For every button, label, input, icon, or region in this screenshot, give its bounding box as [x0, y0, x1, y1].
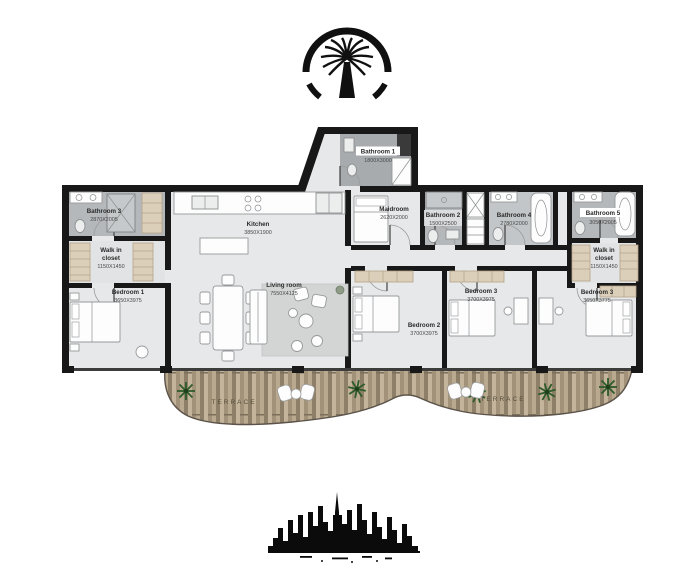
- walkin-left-label-2: closet: [102, 255, 120, 262]
- maidroom-label: Maidroom: [379, 206, 409, 213]
- kitchen-dims: 3850X1900: [244, 230, 272, 236]
- bedroom3b-dims: 3650X3775: [583, 298, 611, 304]
- bathroom5-label: Bathroom 5: [586, 210, 621, 217]
- floorplan-drawing: TERRACE TERRACE: [0, 0, 687, 572]
- bedroom1-label: Bedroom 1: [112, 289, 145, 296]
- walkin-right-dims: 1150X1450: [590, 264, 617, 270]
- walkin-left-label-1: Walk in: [100, 247, 122, 254]
- kitchen-label: Kitchen: [247, 221, 270, 228]
- bathroom4-dims: 2780X2000: [500, 221, 528, 227]
- terrace-label-left: TERRACE: [211, 399, 256, 406]
- bedroom3-dims: 3700X3975: [467, 297, 495, 303]
- living-label: Living room: [266, 282, 302, 289]
- terrace-label-right: TERRACE: [480, 396, 525, 403]
- palm-trunk-icon: [339, 62, 355, 98]
- palm-jumeirah-logo: [306, 31, 388, 98]
- living-dims: 7550X4125: [270, 291, 298, 297]
- living-room-furniture: [250, 284, 348, 356]
- bedroom2-dims: 3700X3975: [410, 331, 438, 337]
- walkin-right-label-1: Walk in: [593, 247, 615, 254]
- floorplan-page: TERRACE TERRACE: [0, 0, 687, 572]
- bathroom4-label: Bathroom 4: [497, 212, 532, 219]
- terrace: TERRACE TERRACE: [165, 370, 632, 424]
- bathroom2-label: Bathroom 2: [426, 212, 461, 219]
- plant-icon: [177, 382, 195, 400]
- maidroom-dims: 2620X2000: [380, 215, 408, 221]
- bathroom3-left-label: Bathroom 3: [87, 208, 122, 215]
- terrace-deck: [165, 370, 632, 424]
- bedroom1-dims: 3650X3975: [114, 298, 142, 304]
- bathroom1-label: Bathroom 1: [361, 149, 396, 156]
- plant-icon: [599, 378, 617, 396]
- bathroom1-dims: 1800X3000: [364, 158, 392, 164]
- bedroom2-label: Bedroom 2: [408, 322, 441, 329]
- bedroom3-label: Bedroom 3: [465, 288, 498, 295]
- dubai-skyline-silhouette: [268, 492, 420, 563]
- bedroom3b-label: Bedroom 3: [581, 289, 614, 296]
- bathroom5-dims: 3050X2005: [589, 220, 617, 226]
- bathroom2-dims: 1500X2500: [429, 221, 457, 227]
- walkin-right-label-2: closet: [595, 255, 613, 262]
- walkin-left-dims: 1150X1450: [97, 264, 124, 270]
- bathroom3-left-dims: 2870X2005: [90, 217, 118, 223]
